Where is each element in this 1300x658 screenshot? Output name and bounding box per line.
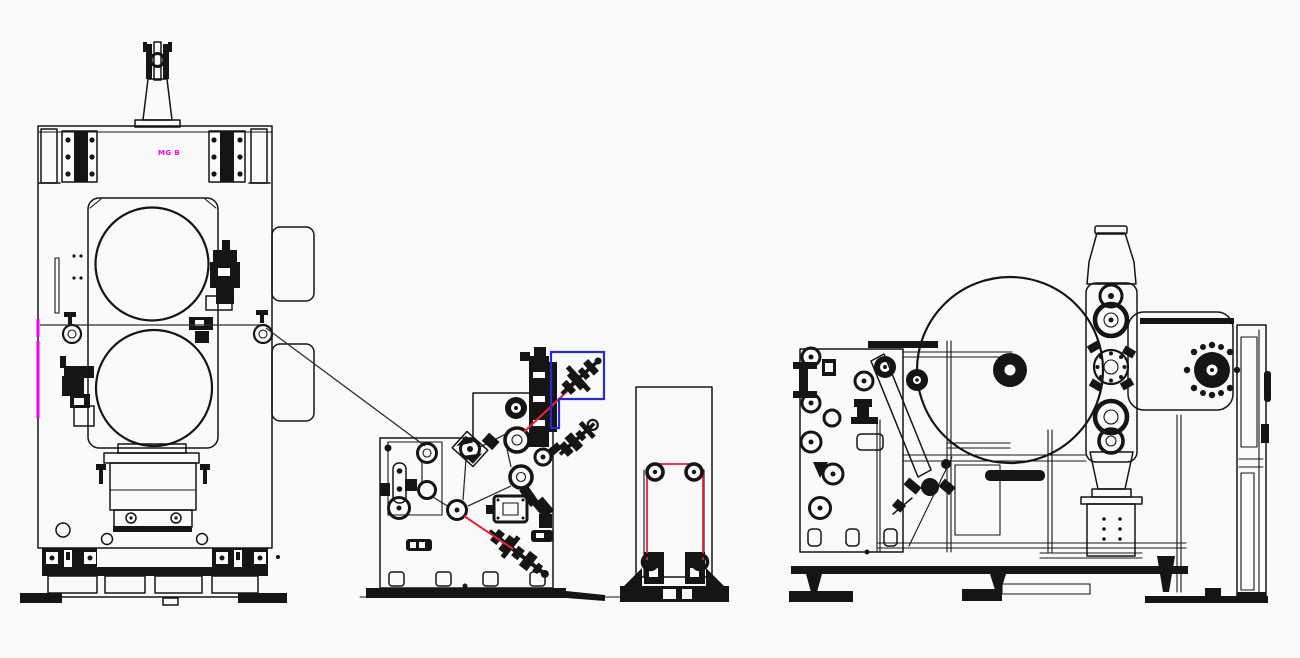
edge-marks: [37, 319, 40, 418]
cad-drawing-page: MG B: [0, 0, 1300, 658]
press-label: MG B: [158, 149, 180, 157]
cad-canvas: MG B: [0, 0, 1300, 658]
